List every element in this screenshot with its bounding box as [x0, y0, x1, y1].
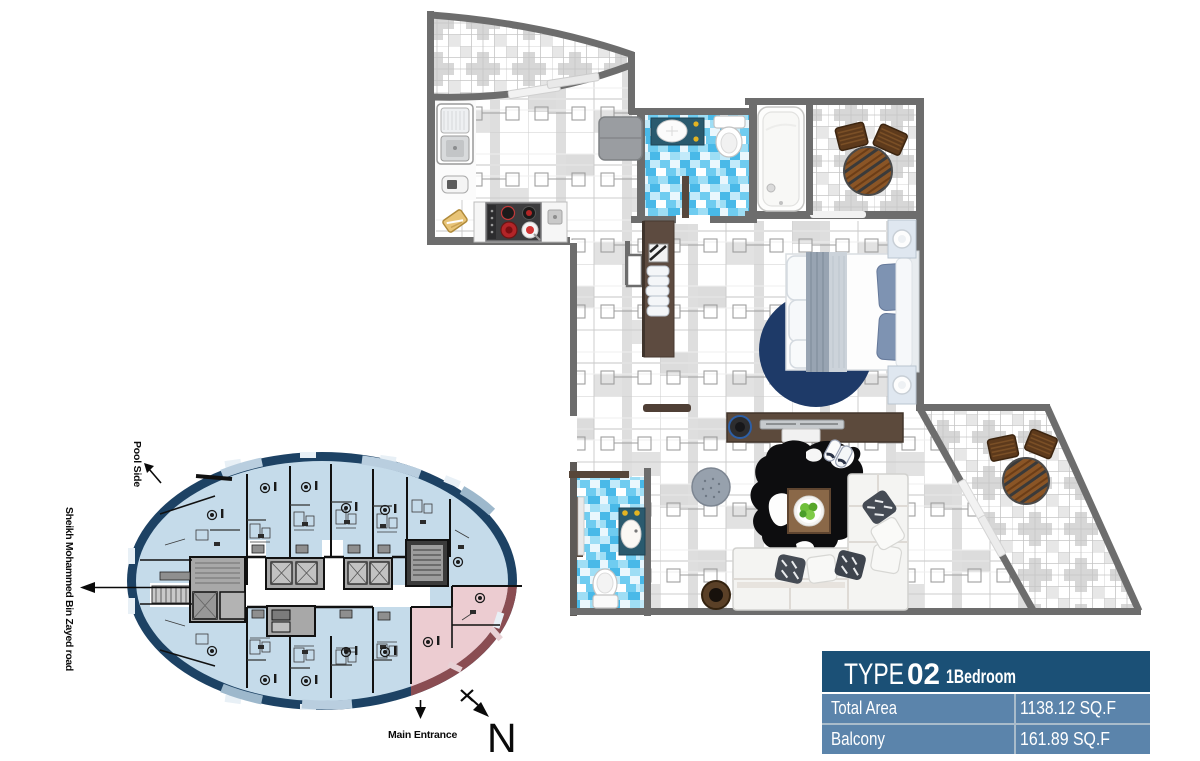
svg-text:1138.12 SQ.F: 1138.12 SQ.F [1020, 697, 1116, 718]
svg-text:Total Area: Total Area [831, 697, 898, 718]
svg-text:Pool Side: Pool Side [131, 441, 143, 487]
svg-text:02: 02 [907, 658, 940, 691]
svg-text:Balcony: Balcony [831, 728, 886, 749]
svg-text:161.89 SQ.F: 161.89 SQ.F [1020, 728, 1110, 749]
svg-text:Sheikh Mohammed Bin Zayed road: Sheikh Mohammed Bin Zayed road [63, 507, 75, 671]
svg-text:TYPE: TYPE [844, 658, 904, 691]
svg-text:1Bedroom: 1Bedroom [946, 666, 1016, 688]
svg-text:N: N [487, 715, 517, 761]
svg-text:Main Entrance: Main Entrance [388, 729, 458, 741]
